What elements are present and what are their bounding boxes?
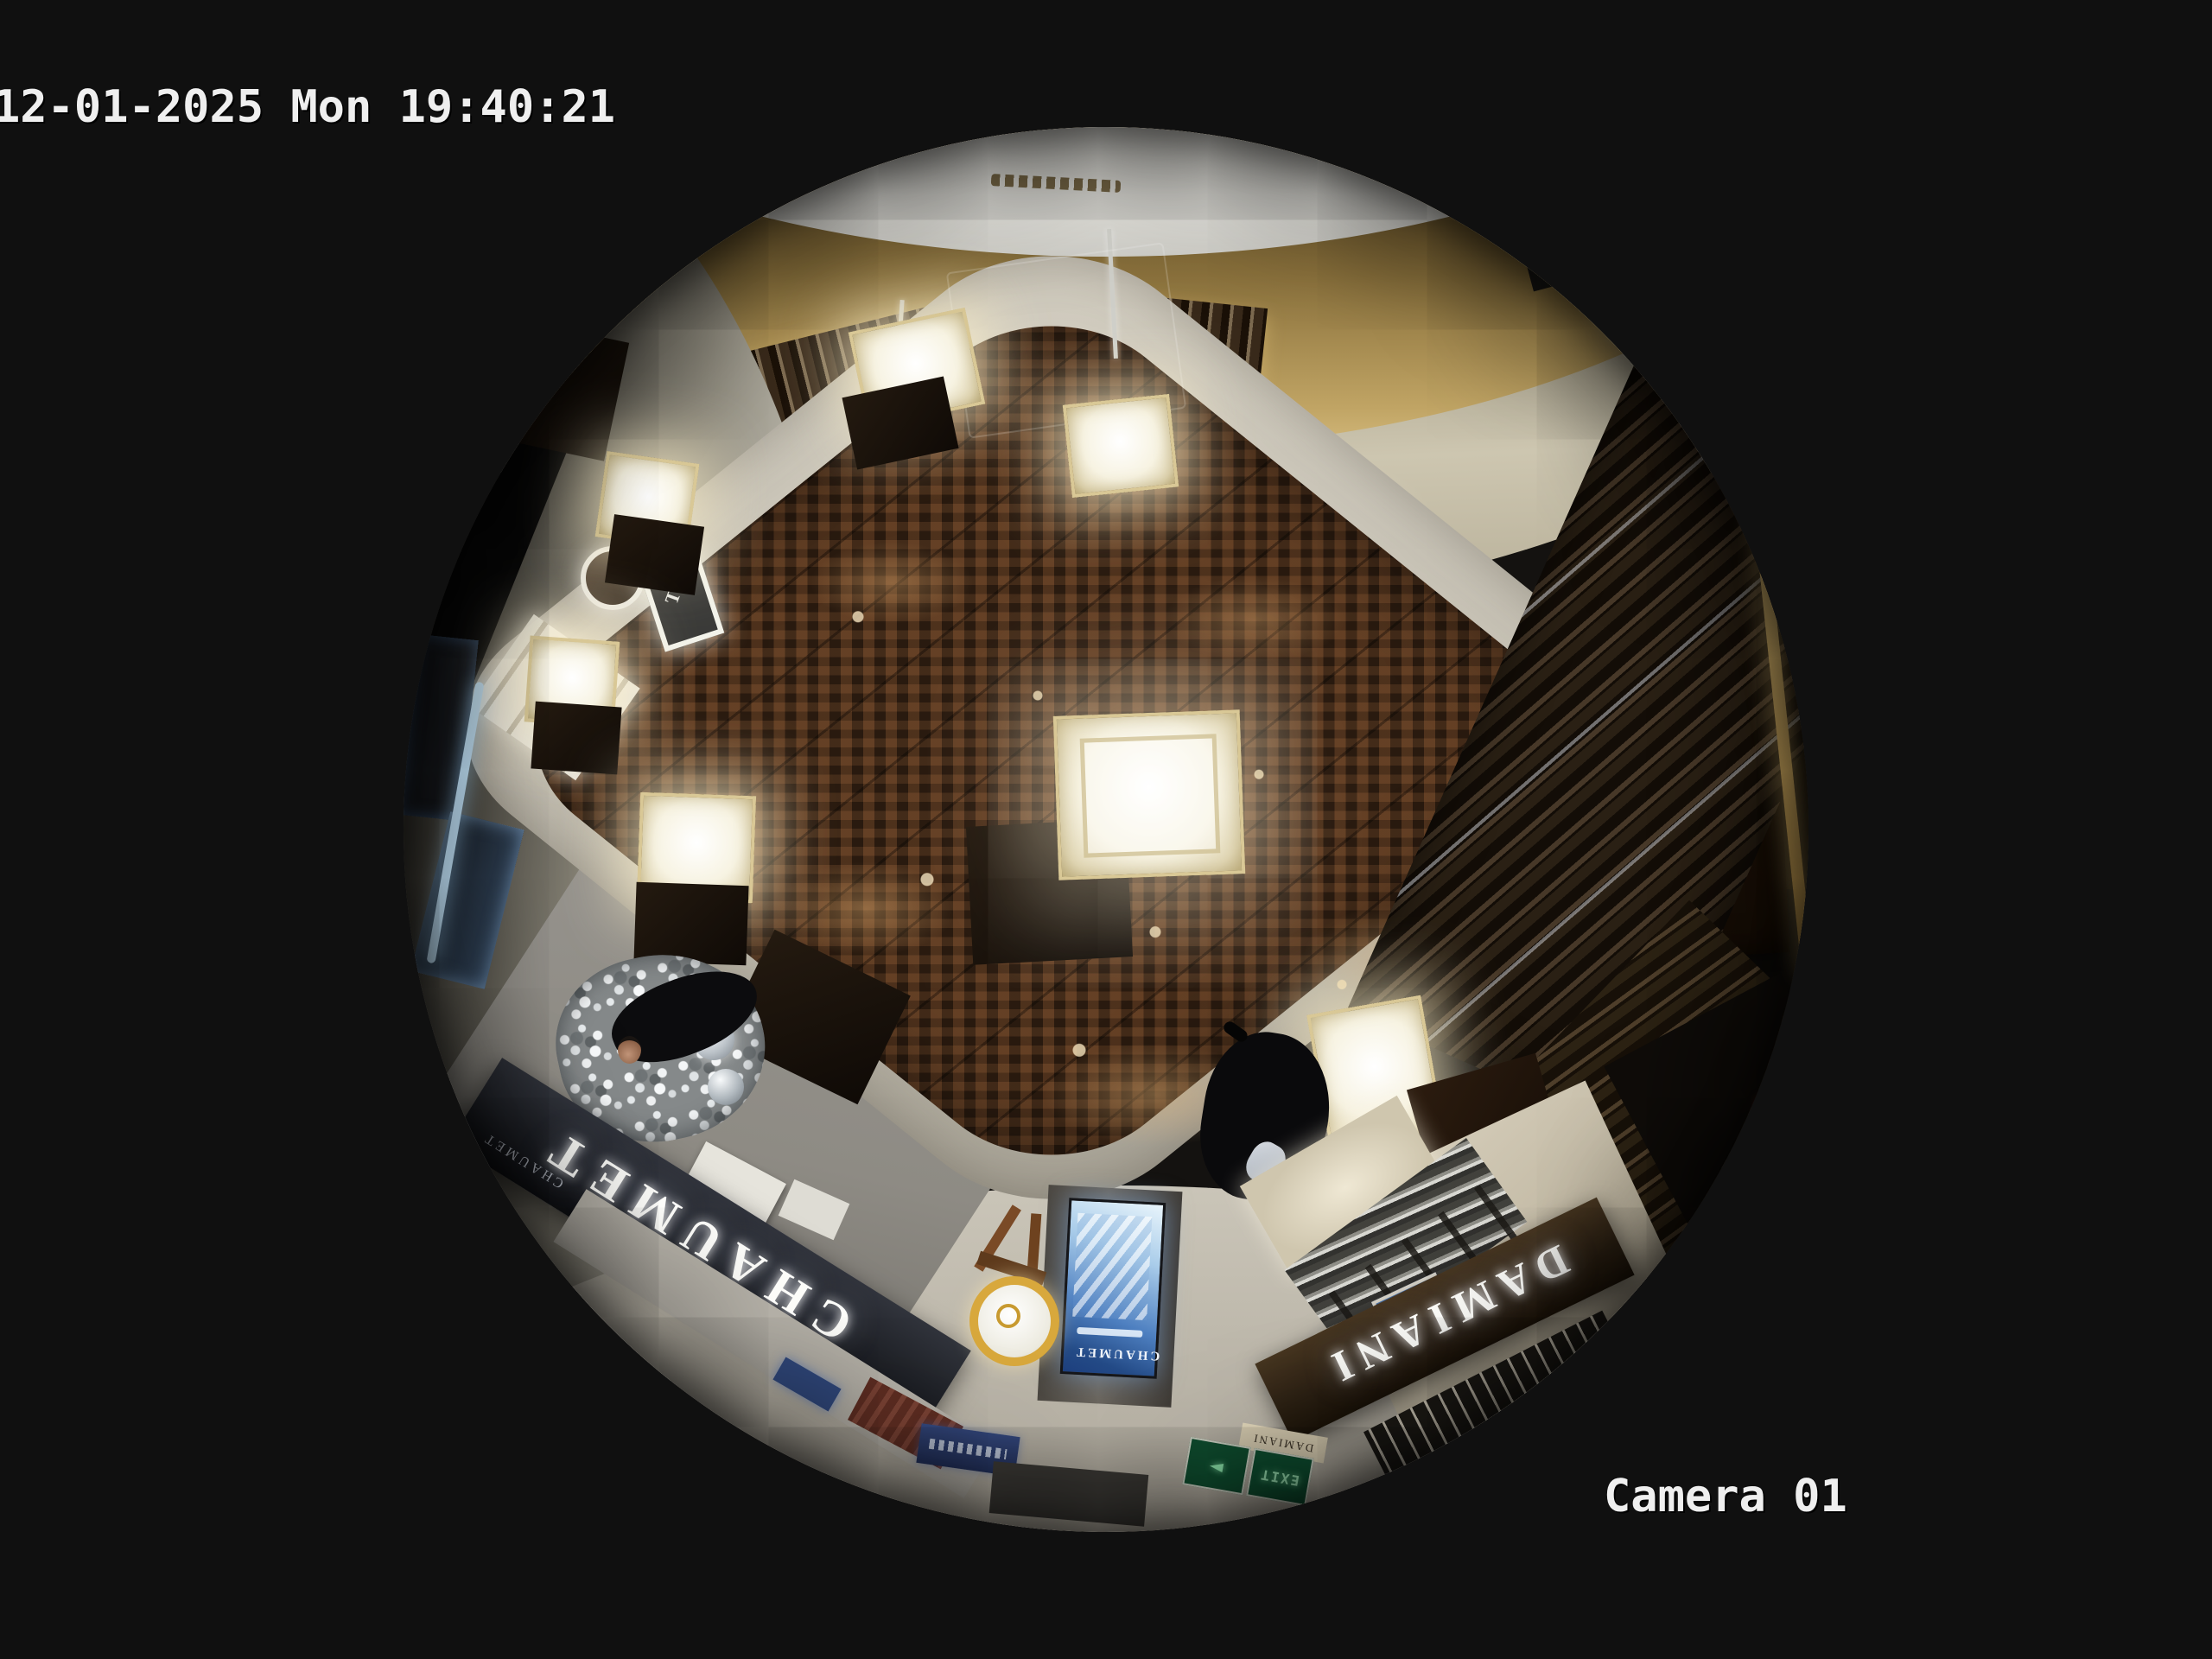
fisheye-view: TOM FORD TF — [404, 127, 1808, 1532]
lens-vignette — [404, 127, 1808, 1532]
shelf-flowers-red — [1756, 1095, 1785, 1117]
osd-camera-label: Camera 01 — [1604, 1471, 1847, 1522]
osd-timestamp: 12-01-2025 Mon 19:40:21 — [0, 81, 615, 133]
cctv-frame: TOM FORD TF — [0, 0, 2212, 1659]
